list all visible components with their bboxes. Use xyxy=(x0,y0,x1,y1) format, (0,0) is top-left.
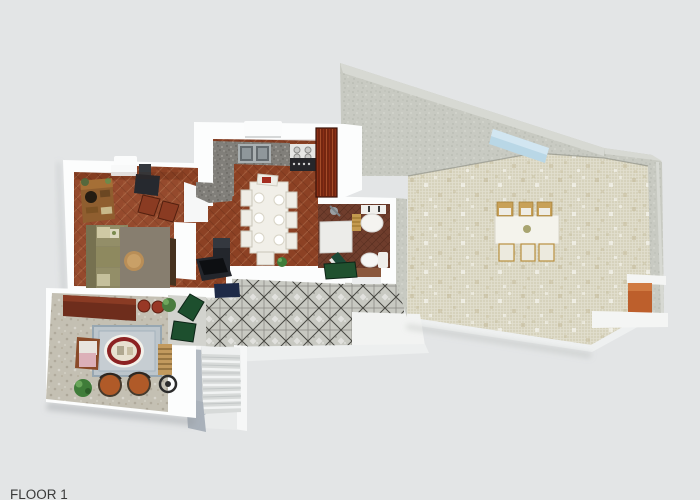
svg-text:FLOOR 1: FLOOR 1 xyxy=(10,487,68,500)
